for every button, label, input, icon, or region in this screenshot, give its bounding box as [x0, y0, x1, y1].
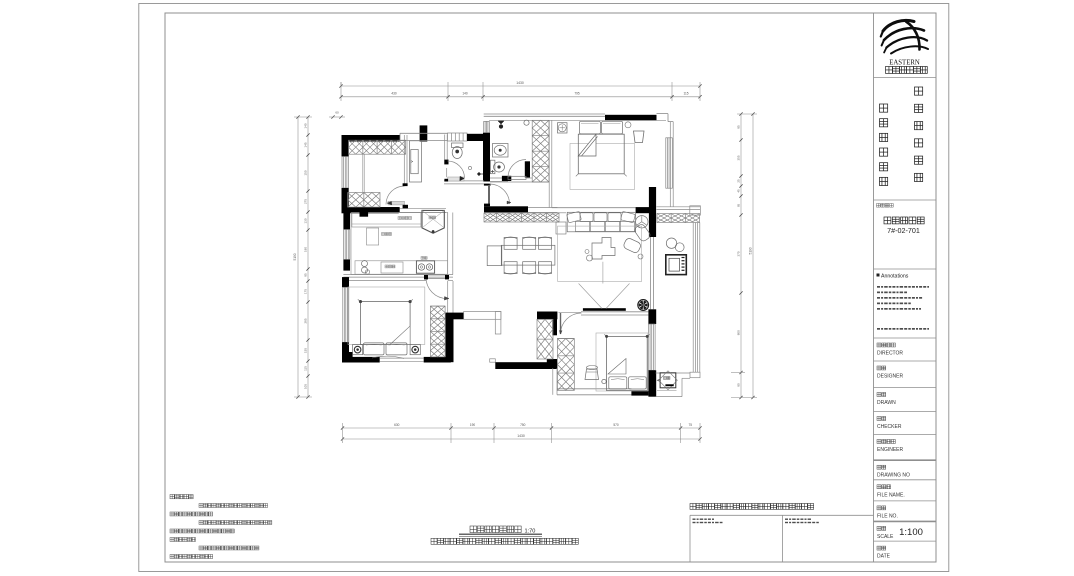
svg-text:130: 130	[304, 218, 308, 223]
svg-text:DATE: DATE	[877, 554, 891, 560]
svg-text:25: 25	[737, 179, 741, 183]
svg-text:285: 285	[304, 318, 308, 323]
svg-text:DIRECTOR: DIRECTOR	[877, 351, 903, 357]
svg-text:DRAWN: DRAWN	[877, 400, 896, 406]
svg-text:ENGINEER: ENGINEER	[877, 447, 904, 453]
svg-text:CHECKER: CHECKER	[877, 424, 902, 430]
svg-text:145: 145	[304, 142, 308, 147]
svg-text:355: 355	[737, 155, 741, 160]
svg-text:115: 115	[683, 92, 688, 96]
svg-text:80: 80	[737, 383, 741, 387]
svg-text:140: 140	[462, 92, 468, 96]
svg-text:430: 430	[391, 92, 397, 96]
svg-text:45: 45	[737, 189, 741, 193]
svg-text:155: 155	[304, 348, 308, 353]
svg-text:370: 370	[737, 251, 741, 256]
svg-text:60: 60	[335, 111, 339, 115]
svg-text:5190: 5190	[749, 247, 753, 254]
svg-text:7#-02-701: 7#-02-701	[887, 226, 920, 235]
svg-text:115: 115	[304, 366, 308, 371]
svg-text:150: 150	[304, 170, 308, 175]
svg-text:190: 190	[470, 423, 476, 427]
svg-text:65: 65	[737, 204, 741, 208]
svg-text:1430: 1430	[517, 434, 525, 438]
svg-text:630: 630	[394, 423, 400, 427]
svg-text:105: 105	[304, 384, 308, 389]
svg-text:175: 175	[304, 289, 308, 294]
svg-text:85: 85	[304, 273, 308, 277]
svg-text:800: 800	[737, 330, 741, 335]
svg-text:FILE NO.: FILE NO.	[877, 513, 898, 519]
svg-text:570: 570	[613, 423, 619, 427]
svg-text:5190: 5190	[293, 253, 297, 260]
svg-text:FILE NAME.: FILE NAME.	[877, 492, 905, 498]
svg-text:140: 140	[304, 123, 308, 128]
svg-text:85: 85	[737, 125, 741, 129]
svg-text:Annotations: Annotations	[881, 274, 909, 280]
svg-text:750: 750	[520, 423, 526, 427]
svg-text:1:100: 1:100	[899, 527, 923, 538]
svg-text:275: 275	[304, 199, 308, 204]
svg-text:DRAWING NO: DRAWING NO	[877, 473, 910, 479]
svg-text:1:70: 1:70	[525, 528, 536, 534]
svg-text:180: 180	[304, 247, 308, 252]
svg-text:1430: 1430	[516, 81, 524, 85]
svg-text:795: 795	[574, 92, 580, 96]
svg-text:DESIGNER: DESIGNER	[877, 374, 904, 380]
svg-text:SCALE: SCALE	[877, 534, 894, 540]
svg-text:75: 75	[689, 423, 693, 427]
svg-text:EASTERN: EASTERN	[889, 60, 920, 67]
